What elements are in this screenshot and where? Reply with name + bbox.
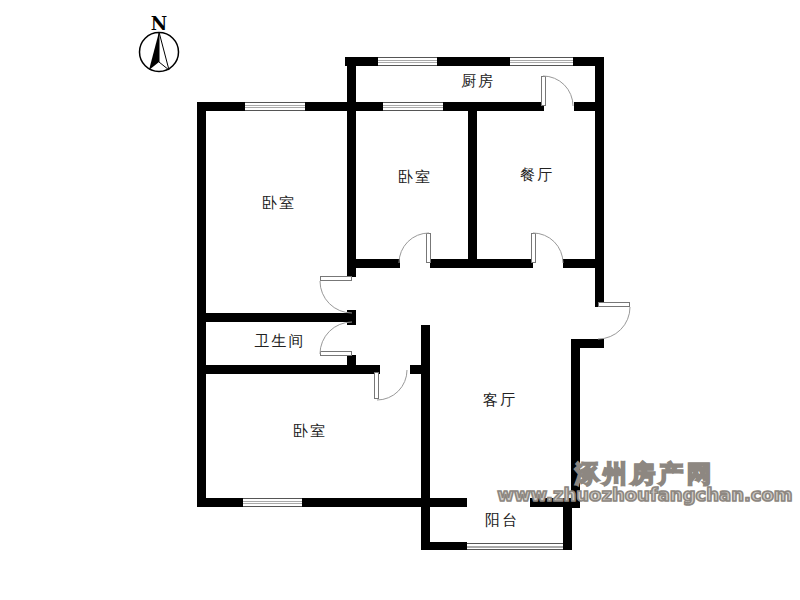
door-leaf-entry [598, 302, 630, 307]
room-label-dining: 餐厅 [520, 166, 554, 185]
wall-left-outer [197, 102, 206, 507]
door-leaf-bedroom1 [320, 276, 352, 281]
door-leaf-bedroom2 [426, 233, 431, 263]
wall-balcony-right [563, 500, 572, 550]
wall-bedroom1-top-b [305, 102, 383, 111]
wall-living-left [421, 325, 430, 550]
room-label-kitchen: 厨房 [461, 72, 495, 91]
door-arc-entry [598, 307, 630, 339]
door-arc-dining [533, 233, 563, 263]
compass-needle-left [149, 32, 159, 70]
wall-bathroom-top [197, 313, 356, 322]
window-kitchen-top-1 [378, 57, 437, 66]
wall-kitchen-top-mid [437, 57, 510, 66]
door-leaf-bathroom [320, 351, 352, 356]
window-balcony [467, 543, 563, 550]
room-label-living: 客厅 [483, 391, 517, 410]
window-bedroom1 [245, 102, 305, 111]
compass-needle-right [159, 32, 169, 70]
door-arc-kitchen [543, 76, 573, 106]
door-leaf-kitchen [541, 76, 546, 106]
door-arc-bedroom2 [399, 233, 429, 263]
window-kitchen-top-2 [510, 57, 573, 66]
room-label-bathroom: 卫生间 [255, 332, 306, 351]
wall-center-vertical [347, 57, 356, 277]
window-bedroom2 [383, 102, 443, 111]
room-label-balcony: 阳台 [485, 511, 519, 530]
wall-center-stub-1 [347, 310, 356, 325]
wall-right-outer [595, 57, 604, 307]
wall-center-stub-2 [347, 355, 356, 374]
wall-bedroom3-bottom-b [302, 498, 430, 507]
door-leaf-bedroom3 [374, 372, 379, 399]
door-arc-bathroom [320, 322, 352, 354]
door-arcs-layer [0, 0, 800, 600]
wall-hall-top-b [430, 259, 533, 268]
wall-bedroom2-dining-divider [468, 111, 477, 268]
room-label-bedroom3: 卧室 [293, 422, 327, 441]
north-compass: N [133, 8, 187, 82]
room-label-bedroom2: 卧室 [398, 168, 432, 187]
door-leaf-dining [531, 233, 536, 263]
room-label-bedroom1: 卧室 [262, 194, 296, 213]
door-arc-bedroom3 [377, 370, 407, 400]
window-bedroom3 [243, 498, 302, 507]
door-arc-bedroom1 [320, 281, 352, 313]
watermark-site-url: www.zhuozhoufangchan.com [497, 484, 792, 505]
floor-plan: 厨房 卧室 卧室 餐厅 卫生间 卧室 客厅 阳台 N 涿州房产网 www.zhu… [0, 0, 800, 600]
north-label: N [151, 13, 167, 34]
wall-balcony-top-left [430, 498, 467, 507]
wall-kitchen-bottom-a [443, 102, 544, 111]
